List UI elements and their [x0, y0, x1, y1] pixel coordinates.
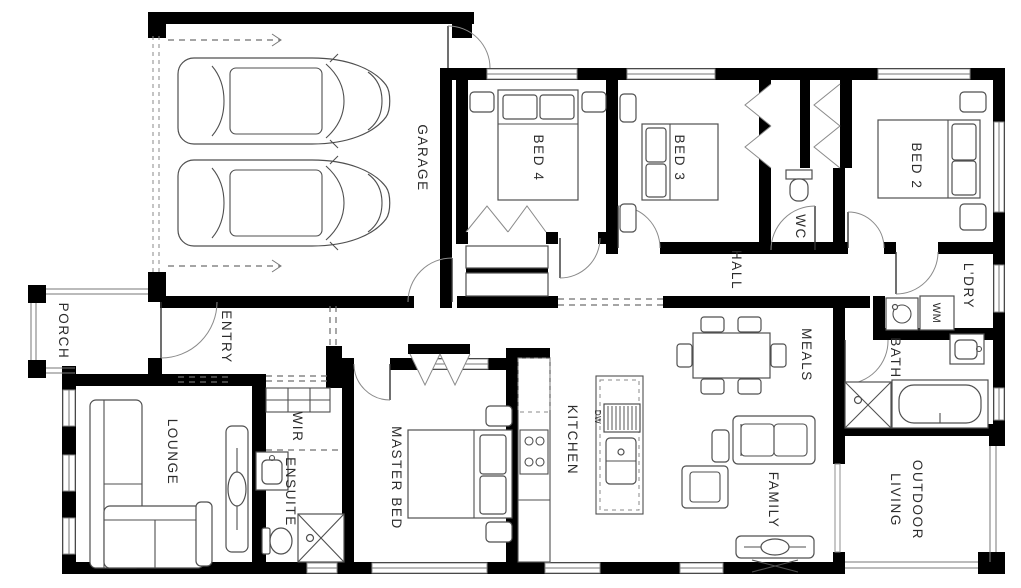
front-door	[161, 302, 217, 358]
master-bed-furniture	[408, 406, 512, 542]
wir-shelves	[266, 388, 330, 412]
porch-label: PORCH	[56, 303, 71, 360]
meals-label: MEALS	[799, 328, 814, 382]
outdoor-sliding-door	[835, 464, 840, 552]
kitchen-island	[596, 376, 643, 514]
ldry-door	[896, 252, 938, 294]
ensuite-shower	[298, 514, 344, 562]
bath-shower	[845, 382, 891, 428]
bed3-label: BED 3	[672, 134, 687, 181]
bath-door	[845, 340, 888, 384]
washing-machine-label: WM	[930, 303, 942, 324]
porch-rails	[31, 289, 148, 373]
wc-toilet	[786, 170, 812, 201]
dishwasher	[604, 404, 640, 432]
bed4-label: BED 4	[531, 134, 546, 181]
outdoor-living-label-1: OUTDOOR	[910, 460, 925, 540]
bed3-window	[627, 69, 715, 79]
lounge-sofa	[90, 400, 212, 568]
wc-label: WC	[793, 214, 808, 240]
hall-label: HALL	[729, 250, 744, 290]
ldry-label: L'DRY	[961, 263, 976, 309]
bed2-label: BED 2	[909, 142, 924, 189]
bed2-robe	[814, 84, 840, 168]
bed4-window	[487, 69, 577, 79]
car-1	[178, 54, 390, 148]
bed4-robe	[466, 206, 548, 296]
entry-label: ENTRY	[219, 310, 234, 364]
outdoor-living-label-2: LIVING	[888, 473, 903, 527]
kitchen-sink	[606, 438, 636, 484]
lounge-label: LOUNGE	[165, 419, 180, 486]
laundry-fixtures	[886, 296, 954, 330]
bath-label: BATH	[888, 337, 903, 378]
kitchen-label: KITCHEN	[565, 405, 580, 475]
ensuite-fixtures	[256, 452, 344, 562]
cooktop	[520, 430, 548, 474]
garage-label: GARAGE	[415, 124, 430, 191]
car-2	[178, 156, 390, 250]
dining-set	[677, 317, 786, 394]
bed2-front-window	[878, 69, 970, 79]
bed3-furniture	[620, 94, 718, 232]
bath-fixtures	[845, 334, 988, 428]
bed4-door	[560, 238, 600, 278]
floor-plan-drawing: GARAGE PORCH ENTRY LOUNGE WIR ENSUITE MA…	[0, 0, 1021, 588]
kitchen-bench	[518, 358, 550, 562]
floor-plan: GARAGE PORCH ENTRY LOUNGE WIR ENSUITE MA…	[0, 0, 1021, 588]
bed2-furniture	[878, 92, 986, 230]
lounge-windows	[63, 390, 75, 554]
family-label: FAMILY	[766, 472, 781, 529]
bath-vanity	[950, 334, 984, 364]
lounge-tv-unit	[226, 426, 248, 552]
bed2-door	[848, 212, 884, 248]
ensuite-label: ENSUITE	[283, 457, 298, 527]
bathtub	[892, 380, 988, 428]
bath-window	[994, 388, 1004, 420]
family-furniture	[682, 416, 815, 572]
ldry-window	[994, 265, 1004, 312]
bed2-side-window	[994, 122, 1004, 212]
master-bed-label: MASTER BED	[389, 426, 404, 530]
master-door	[354, 364, 390, 400]
dishwasher-label: DW	[593, 410, 602, 424]
wir-label: WIR	[290, 411, 305, 442]
